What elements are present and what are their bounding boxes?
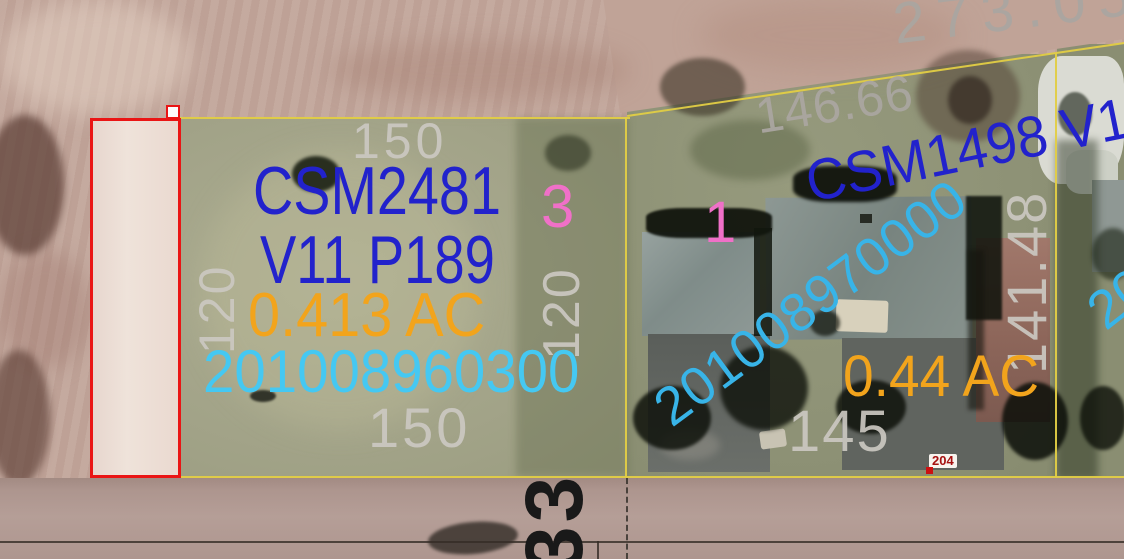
selected-parcel[interactable] [90,118,181,478]
address-point-dot[interactable] [926,467,933,474]
lot-number-label-a: 3 [541,177,574,237]
tree-canopy [1080,386,1124,450]
parcel-boundary-west-mid [625,117,627,477]
address-point-marker[interactable]: 204 [929,454,957,468]
selection-handle[interactable] [166,105,180,119]
map-canvas[interactable]: 150 150 120 120 146.66 273.05 141.48 145… [0,0,1124,559]
parcel-boundary-south [180,476,1124,478]
dim-label-south-b: 145 [788,403,891,461]
csm-label-a: CSM2481 [253,157,501,225]
tree-canopy [545,135,591,171]
lot-line-dashed [626,478,628,559]
acreage-label-b: 0.44 AC [843,348,1039,406]
route-number-label: 33 [514,473,596,559]
dim-label-south-a: 150 [368,400,470,456]
parcel-id-label-a: 201008960300 [203,342,579,402]
yard-object [759,428,787,449]
field-smudge [330,40,630,100]
lot-number-label-b: 1 [704,194,736,252]
field-smudge [0,0,190,115]
